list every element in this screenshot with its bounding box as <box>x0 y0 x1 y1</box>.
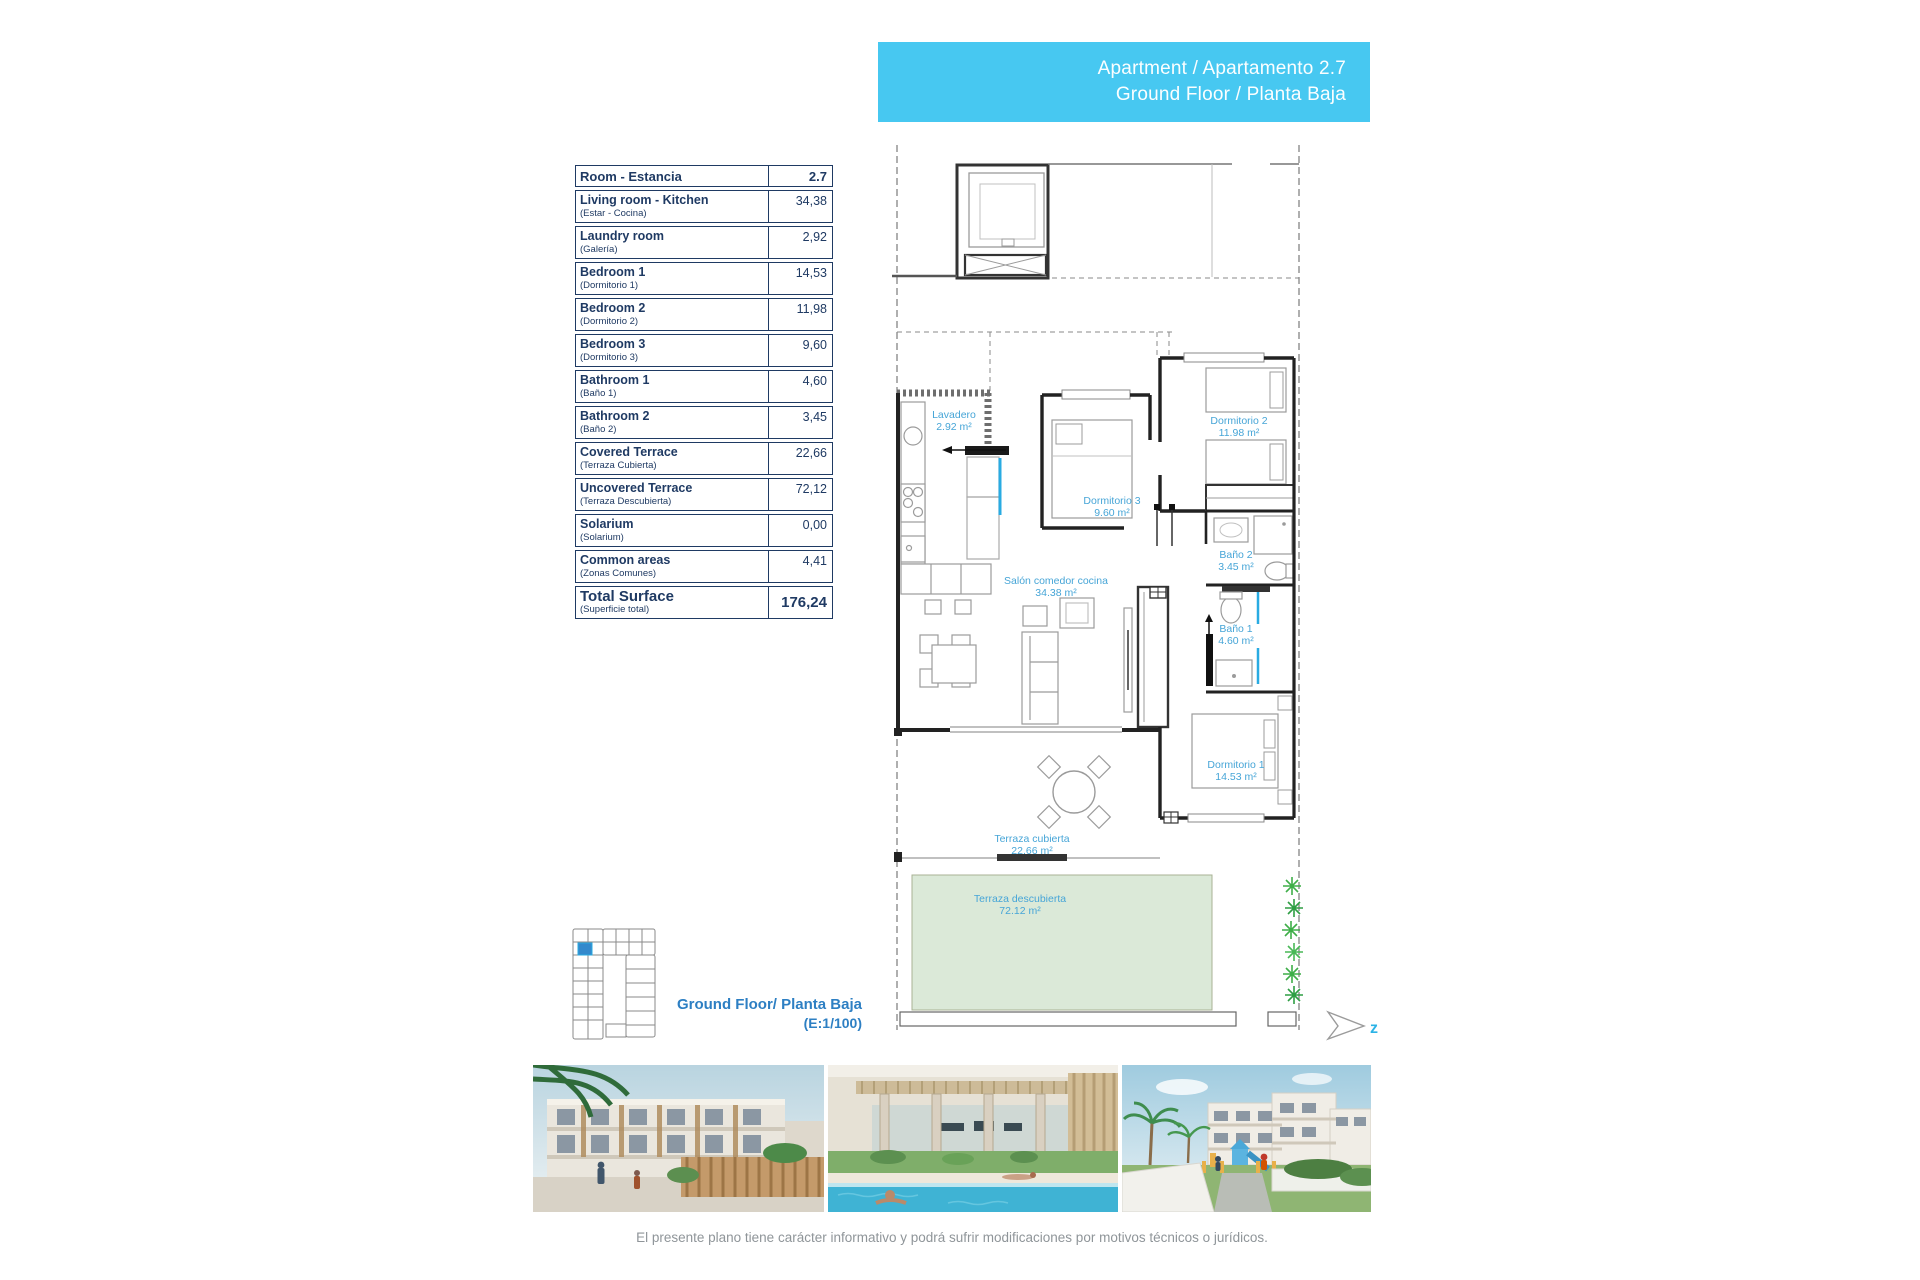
nightstand <box>1278 790 1292 804</box>
room-area-value: 22,66 <box>768 443 832 474</box>
table-header-value: 2.7 <box>768 166 832 186</box>
north-arrow-icon: z <box>1328 1012 1378 1039</box>
door-panel <box>1206 634 1213 686</box>
floor-plan: z Lavadero 2.92 m² Dormitorio 3 9.60 m² … <box>892 140 1392 1060</box>
window <box>1062 390 1130 399</box>
table-total-row: Total Surface (Superficie total) 176,24 <box>575 586 833 619</box>
table-row: Solarium (Solarium) 0,00 <box>575 514 833 547</box>
room-area-value: 14,53 <box>768 263 832 294</box>
table-row: Bedroom 3 (Dormitorio 3) 9,60 <box>575 334 833 367</box>
dishwasher <box>901 536 925 562</box>
shelf <box>1222 586 1270 592</box>
hall-wardrobe <box>1138 587 1168 727</box>
room-name-es: (Terraza Cubierta) <box>580 460 768 472</box>
window <box>1188 814 1264 822</box>
room-area-value: 11,98 <box>768 299 832 330</box>
photo-playground <box>1122 1065 1371 1212</box>
room-area-value: 3,45 <box>768 407 832 438</box>
shower <box>1254 516 1292 554</box>
room-name-en: Bathroom 2 <box>580 409 768 424</box>
room-name-es: (Dormitorio 2) <box>580 316 768 328</box>
nightstand <box>1278 696 1292 710</box>
room-name-en: Common areas <box>580 553 768 568</box>
room-name-en: Laundry room <box>580 229 768 244</box>
north-letter: z <box>1370 1020 1378 1037</box>
header-banner: Apartment / Apartamento 2.7 Ground Floor… <box>878 42 1370 122</box>
room-area-value: 0,00 <box>768 515 832 546</box>
room-name-es: (Galería) <box>580 244 768 256</box>
label-bano1: Baño 1 <box>1219 623 1252 635</box>
floor-title: Ground Floor / Planta Baja <box>1116 82 1346 108</box>
table-body: Living room - Kitchen (Estar - Cocina) 3… <box>575 190 833 583</box>
caption-floor: Ground Floor/ Planta Baja <box>640 995 862 1014</box>
caption-scale: (E:1/100) <box>640 1014 862 1032</box>
table-row: Bedroom 1 (Dormitorio 1) 14,53 <box>575 262 833 295</box>
floorplan-page: Apartment / Apartamento 2.7 Ground Floor… <box>0 0 1920 1280</box>
table-row: Laundry room (Galería) 2,92 <box>575 226 833 259</box>
chair <box>1088 756 1111 779</box>
total-value: 176,24 <box>768 587 832 618</box>
floor-plan-svg: z Lavadero 2.92 m² Dormitorio 3 9.60 m² … <box>892 140 1392 1055</box>
toilet <box>1221 597 1241 623</box>
label-lavadero: Lavadero <box>932 409 976 421</box>
plan-caption: Ground Floor/ Planta Baja (E:1/100) <box>640 995 862 1032</box>
svg-text:34.38 m²: 34.38 m² <box>1035 587 1077 599</box>
chair <box>1088 806 1111 829</box>
room-area-value: 4,60 <box>768 371 832 402</box>
label-dorm2: Dormitorio 2 <box>1210 415 1267 427</box>
label-dorm3: Dormitorio 3 <box>1083 495 1140 507</box>
room-name-es: (Dormitorio 3) <box>580 352 768 364</box>
room-name-es: (Baño 2) <box>580 424 768 436</box>
photo-pool-pergola <box>828 1065 1118 1212</box>
label-dorm1: Dormitorio 1 <box>1207 759 1264 771</box>
room-area-value: 34,38 <box>768 191 832 222</box>
total-label-en: Total Surface <box>580 589 768 604</box>
svg-text:22.66 m²: 22.66 m² <box>1011 845 1053 857</box>
label-terraza-cubierta: Terraza cubierta <box>994 833 1069 845</box>
table-header-row: Room - Estancia 2.7 <box>575 165 833 187</box>
walkway <box>900 1012 1236 1026</box>
table-row: Uncovered Terrace (Terraza Descubierta) … <box>575 478 833 511</box>
highlighted-unit <box>578 943 592 955</box>
sofa <box>1022 632 1058 724</box>
washbasin <box>1216 660 1252 686</box>
room-name-es: (Dormitorio 1) <box>580 280 768 292</box>
surface-table: Room - Estancia 2.7 Living room - Kitche… <box>575 165 833 622</box>
round-table <box>1053 771 1095 813</box>
elevator-stair-core <box>957 165 1048 278</box>
room-name-es: (Zonas Comunes) <box>580 568 768 580</box>
label-bano2: Baño 2 <box>1219 549 1252 561</box>
living-room-furniture <box>920 598 1094 724</box>
room-name-es: (Estar - Cocina) <box>580 208 768 220</box>
apartment-title: Apartment / Apartamento 2.7 <box>1098 56 1346 82</box>
chair <box>1038 756 1061 779</box>
room-area-value: 72,12 <box>768 479 832 510</box>
svg-text:14.53 m²: 14.53 m² <box>1215 771 1257 783</box>
room-area-value: 4,41 <box>768 551 832 582</box>
label-terraza-descubierta: Terraza descubierta <box>974 893 1066 905</box>
room-name-en: Uncovered Terrace <box>580 481 768 496</box>
table-header-label: Room - Estancia <box>576 169 768 184</box>
table-row: Covered Terrace (Terraza Cubierta) 22,66 <box>575 442 833 475</box>
svg-text:9.60 m²: 9.60 m² <box>1094 507 1130 519</box>
table-row: Bathroom 2 (Baño 2) 3,45 <box>575 406 833 439</box>
washbasin <box>1214 518 1248 542</box>
table-row: Bedroom 2 (Dormitorio 2) 11,98 <box>575 298 833 331</box>
stool <box>925 600 941 614</box>
photo-building-exterior <box>533 1065 824 1212</box>
room-name-en: Covered Terrace <box>580 445 768 460</box>
window <box>1184 353 1264 362</box>
side-table <box>1023 606 1047 626</box>
walkway <box>1268 1012 1296 1026</box>
sink-icon <box>904 427 922 445</box>
svg-text:4.60 m²: 4.60 m² <box>1218 635 1254 647</box>
kitchen-counter <box>901 402 991 614</box>
svg-text:2.92 m²: 2.92 m² <box>936 421 972 433</box>
svg-text:3.45 m²: 3.45 m² <box>1218 561 1254 573</box>
hedge-plants-icon <box>1282 877 1303 1004</box>
total-label-es: (Superficie total) <box>580 604 768 616</box>
table-row: Bathroom 1 (Baño 1) 4,60 <box>575 370 833 403</box>
room-name-es: (Terraza Descubierta) <box>580 496 768 508</box>
room-name-en: Bedroom 3 <box>580 337 768 352</box>
svg-text:72.12 m²: 72.12 m² <box>999 905 1041 917</box>
bed <box>1206 440 1286 484</box>
stool <box>955 600 971 614</box>
room-name-en: Bedroom 1 <box>580 265 768 280</box>
room-area-value: 9,60 <box>768 335 832 366</box>
room-name-es: (Baño 1) <box>580 388 768 400</box>
room-name-en: Bathroom 1 <box>580 373 768 388</box>
entry-arrow-icon <box>942 446 952 454</box>
dining-table <box>932 645 976 683</box>
label-salon: Salón comedor cocina <box>1004 575 1108 587</box>
chair <box>1038 806 1061 829</box>
room-name-es: (Solarium) <box>580 532 768 544</box>
svg-text:11.98 m²: 11.98 m² <box>1219 427 1260 439</box>
room-name-en: Bedroom 2 <box>580 301 768 316</box>
disclaimer-text: El presente plano tiene carácter informa… <box>533 1230 1371 1245</box>
room-name-en: Solarium <box>580 517 768 532</box>
room-area-value: 2,92 <box>768 227 832 258</box>
table-row: Living room - Kitchen (Estar - Cocina) 3… <box>575 190 833 223</box>
bed <box>1206 368 1286 412</box>
table-row: Common areas (Zonas Comunes) 4,41 <box>575 550 833 583</box>
entrance <box>942 446 1009 559</box>
room-name-en: Living room - Kitchen <box>580 193 768 208</box>
